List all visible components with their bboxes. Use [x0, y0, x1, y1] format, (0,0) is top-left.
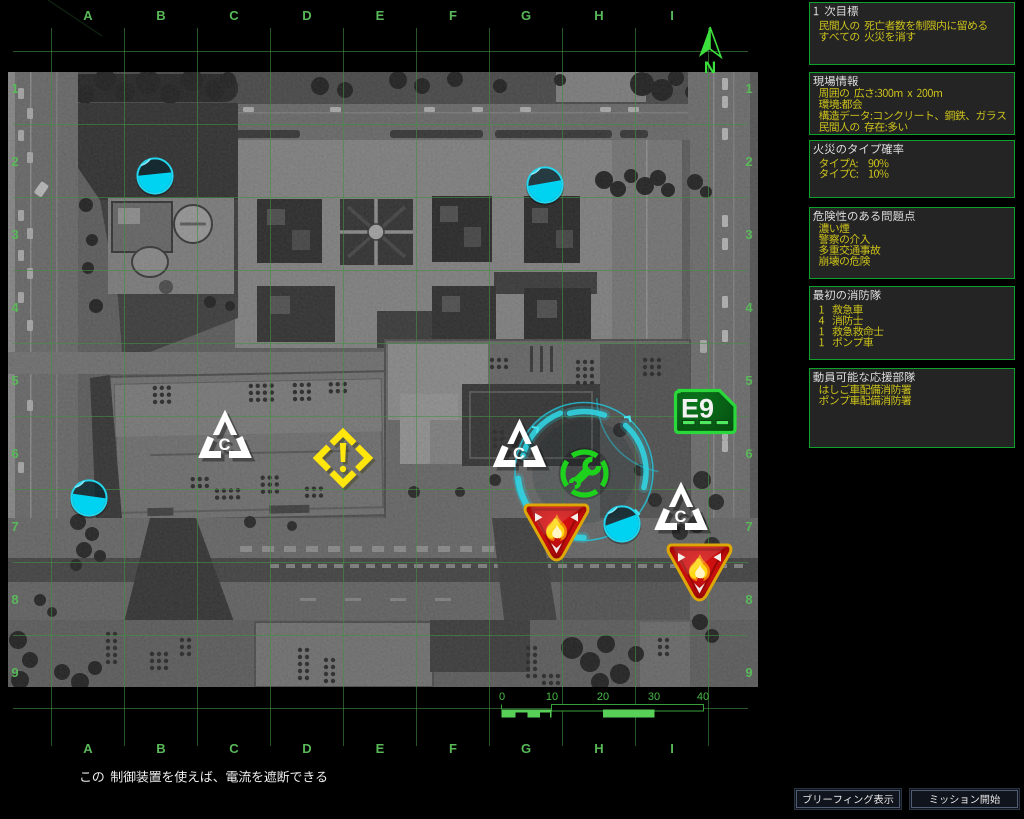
svg-text:G: G [521, 8, 531, 23]
svg-text:A: A [83, 8, 93, 23]
svg-text:G: G [521, 741, 531, 756]
svg-text:C: C [675, 508, 687, 526]
svg-text:3: 3 [745, 227, 752, 242]
svg-text:E: E [376, 8, 385, 23]
svg-text:2: 2 [745, 154, 752, 169]
svg-text:I: I [670, 8, 674, 23]
svg-text:5: 5 [11, 373, 18, 388]
svg-text:10: 10 [546, 691, 558, 703]
svg-text:6: 6 [11, 446, 18, 461]
svg-text:B: B [156, 741, 165, 756]
svg-text:0: 0 [499, 691, 505, 703]
svg-text:7: 7 [745, 519, 752, 534]
svg-text:A: A [83, 741, 93, 756]
svg-text:7: 7 [11, 519, 18, 534]
svg-text:5: 5 [745, 373, 752, 388]
svg-text:6: 6 [745, 446, 752, 461]
svg-text:2: 2 [11, 154, 18, 169]
svg-text:8: 8 [745, 592, 752, 607]
svg-text:B: B [156, 8, 165, 23]
svg-text:D: D [302, 741, 311, 756]
svg-text:E9: E9 [681, 394, 714, 424]
svg-text:F: F [449, 741, 457, 756]
svg-text:30: 30 [648, 691, 660, 703]
svg-text:C: C [229, 8, 239, 23]
svg-text:8: 8 [11, 592, 18, 607]
svg-text:9: 9 [11, 665, 18, 680]
svg-text:3: 3 [11, 227, 18, 242]
svg-text:F: F [449, 8, 457, 23]
svg-text:H: H [594, 741, 603, 756]
svg-text:H: H [594, 8, 603, 23]
svg-text:4: 4 [745, 300, 753, 315]
svg-text:C: C [513, 445, 525, 463]
svg-text:I: I [670, 741, 674, 756]
svg-text:4: 4 [11, 300, 19, 315]
svg-text:E: E [376, 741, 385, 756]
svg-text:1: 1 [11, 81, 18, 96]
svg-text:40: 40 [697, 691, 709, 703]
svg-text:N: N [704, 58, 716, 77]
svg-text:1: 1 [745, 81, 752, 96]
svg-text:C: C [229, 741, 239, 756]
svg-text:D: D [302, 8, 311, 23]
svg-text:C: C [219, 436, 231, 454]
svg-text:20: 20 [597, 691, 609, 703]
svg-text:9: 9 [745, 665, 752, 680]
